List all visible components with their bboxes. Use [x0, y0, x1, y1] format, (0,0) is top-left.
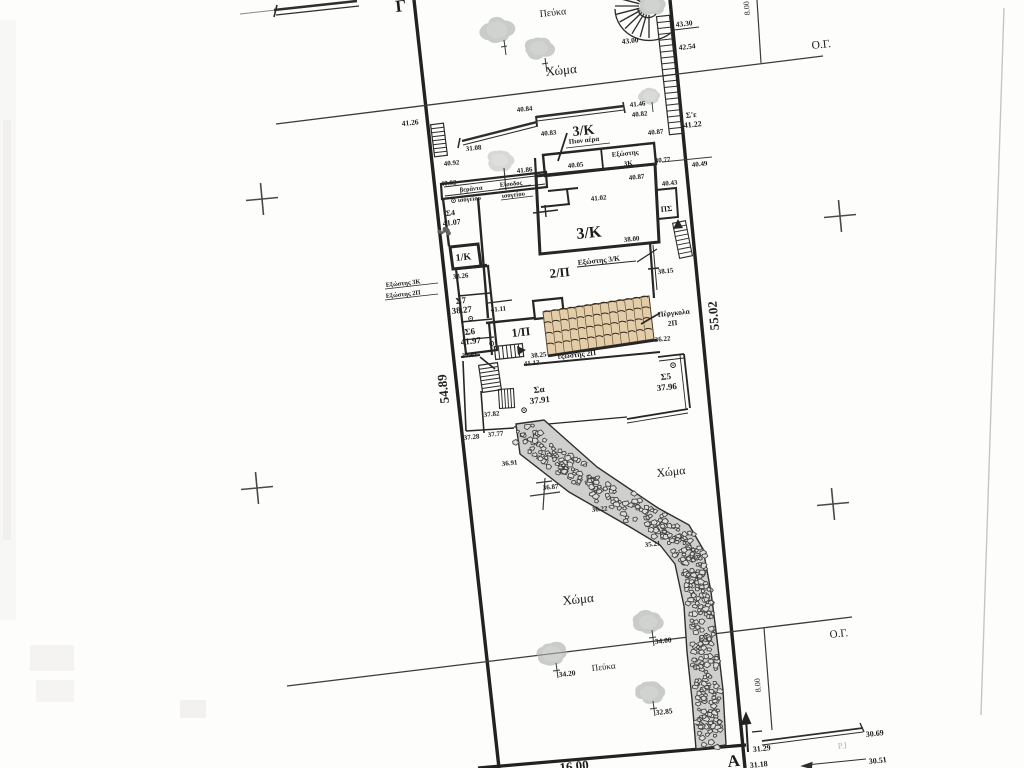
svg-text:41.86: 41.86	[516, 165, 533, 175]
svg-text:40.05: 40.05	[567, 160, 584, 170]
svg-text:38.00: 38.00	[623, 234, 640, 244]
svg-text:3Κ: 3Κ	[623, 159, 633, 168]
svg-text:2/Π: 2/Π	[549, 264, 571, 281]
svg-text:37.77: 37.77	[487, 429, 504, 439]
svg-text:31.29: 31.29	[752, 743, 771, 754]
svg-text:55.02: 55.02	[704, 301, 721, 331]
svg-text:8.00: 8.00	[753, 678, 763, 693]
svg-text:40.92: 40.92	[440, 178, 457, 188]
svg-text:ΠΣ: ΠΣ	[660, 204, 672, 214]
svg-text:41.26: 41.26	[401, 117, 419, 128]
svg-text:Γ: Γ	[394, 0, 407, 16]
svg-text:31.08: 31.08	[465, 143, 482, 153]
svg-text:41.46: 41.46	[629, 99, 646, 109]
svg-text:8.00: 8.00	[742, 1, 752, 16]
svg-text:38.15: 38.15	[657, 266, 674, 276]
svg-text:41.12: 41.12	[523, 358, 540, 368]
svg-text:Σα: Σα	[533, 384, 545, 395]
svg-text:30.69: 30.69	[865, 728, 884, 739]
svg-text:⊙: ⊙	[520, 405, 528, 415]
svg-text:40.84: 40.84	[516, 104, 533, 114]
svg-text:41.07: 41.07	[442, 217, 461, 228]
svg-text:37.61: 37.61	[461, 350, 478, 360]
svg-text:30.51: 30.51	[868, 755, 887, 766]
svg-text:36.22: 36.22	[591, 504, 608, 514]
svg-text:40.82: 40.82	[631, 109, 648, 119]
svg-text:43.30: 43.30	[675, 18, 693, 29]
svg-text:32.85: 32.85	[655, 706, 673, 717]
svg-text:38.26: 38.26	[452, 271, 469, 281]
svg-text:54.89: 54.89	[434, 373, 452, 404]
svg-text:40.83: 40.83	[540, 128, 557, 138]
svg-text:40.49: 40.49	[691, 159, 708, 169]
svg-text:43.00: 43.00	[621, 35, 639, 46]
svg-text:Ο.Γ.: Ο.Γ.	[811, 38, 832, 52]
svg-text:31.18: 31.18	[749, 759, 768, 768]
svg-text:40.87: 40.87	[628, 172, 645, 182]
svg-text:40.77: 40.77	[654, 155, 671, 165]
svg-text:34.20: 34.20	[558, 668, 576, 679]
svg-text:37.82: 37.82	[483, 409, 500, 419]
svg-text:1/Κ: 1/Κ	[455, 251, 472, 264]
svg-text:Ο.Γ.: Ο.Γ.	[829, 627, 849, 641]
svg-text:2Π: 2Π	[667, 318, 678, 328]
svg-text:40.43: 40.43	[661, 178, 678, 188]
svg-text:⊙: ⊙	[669, 360, 677, 370]
svg-text:36.22: 36.22	[654, 334, 671, 344]
svg-text:Σ5: Σ5	[660, 371, 672, 382]
svg-text:41.11: 41.11	[490, 304, 507, 314]
svg-text:42.54: 42.54	[678, 41, 696, 52]
svg-text:41.22: 41.22	[683, 119, 702, 130]
svg-text:Σ4: Σ4	[445, 208, 455, 218]
svg-text:34.00: 34.00	[654, 635, 672, 646]
svg-text:⊙: ⊙	[467, 314, 474, 323]
svg-text:⊙: ⊙	[488, 339, 495, 348]
svg-text:36.87: 36.87	[542, 482, 559, 492]
svg-text:41.02: 41.02	[590, 193, 607, 203]
svg-text:40.87: 40.87	[647, 127, 664, 137]
svg-text:Σ'ε: Σ'ε	[685, 110, 697, 120]
svg-text:16.00: 16.00	[559, 757, 590, 768]
svg-text:37.28: 37.28	[463, 432, 480, 442]
svg-text:40.92: 40.92	[443, 158, 460, 168]
svg-text:1/Π: 1/Π	[511, 324, 532, 340]
svg-text:36.91: 36.91	[501, 458, 518, 468]
svg-text:35.21: 35.21	[644, 539, 661, 549]
svg-text:3/Κ: 3/Κ	[576, 223, 603, 243]
svg-text:P.I: P.I	[837, 740, 847, 751]
